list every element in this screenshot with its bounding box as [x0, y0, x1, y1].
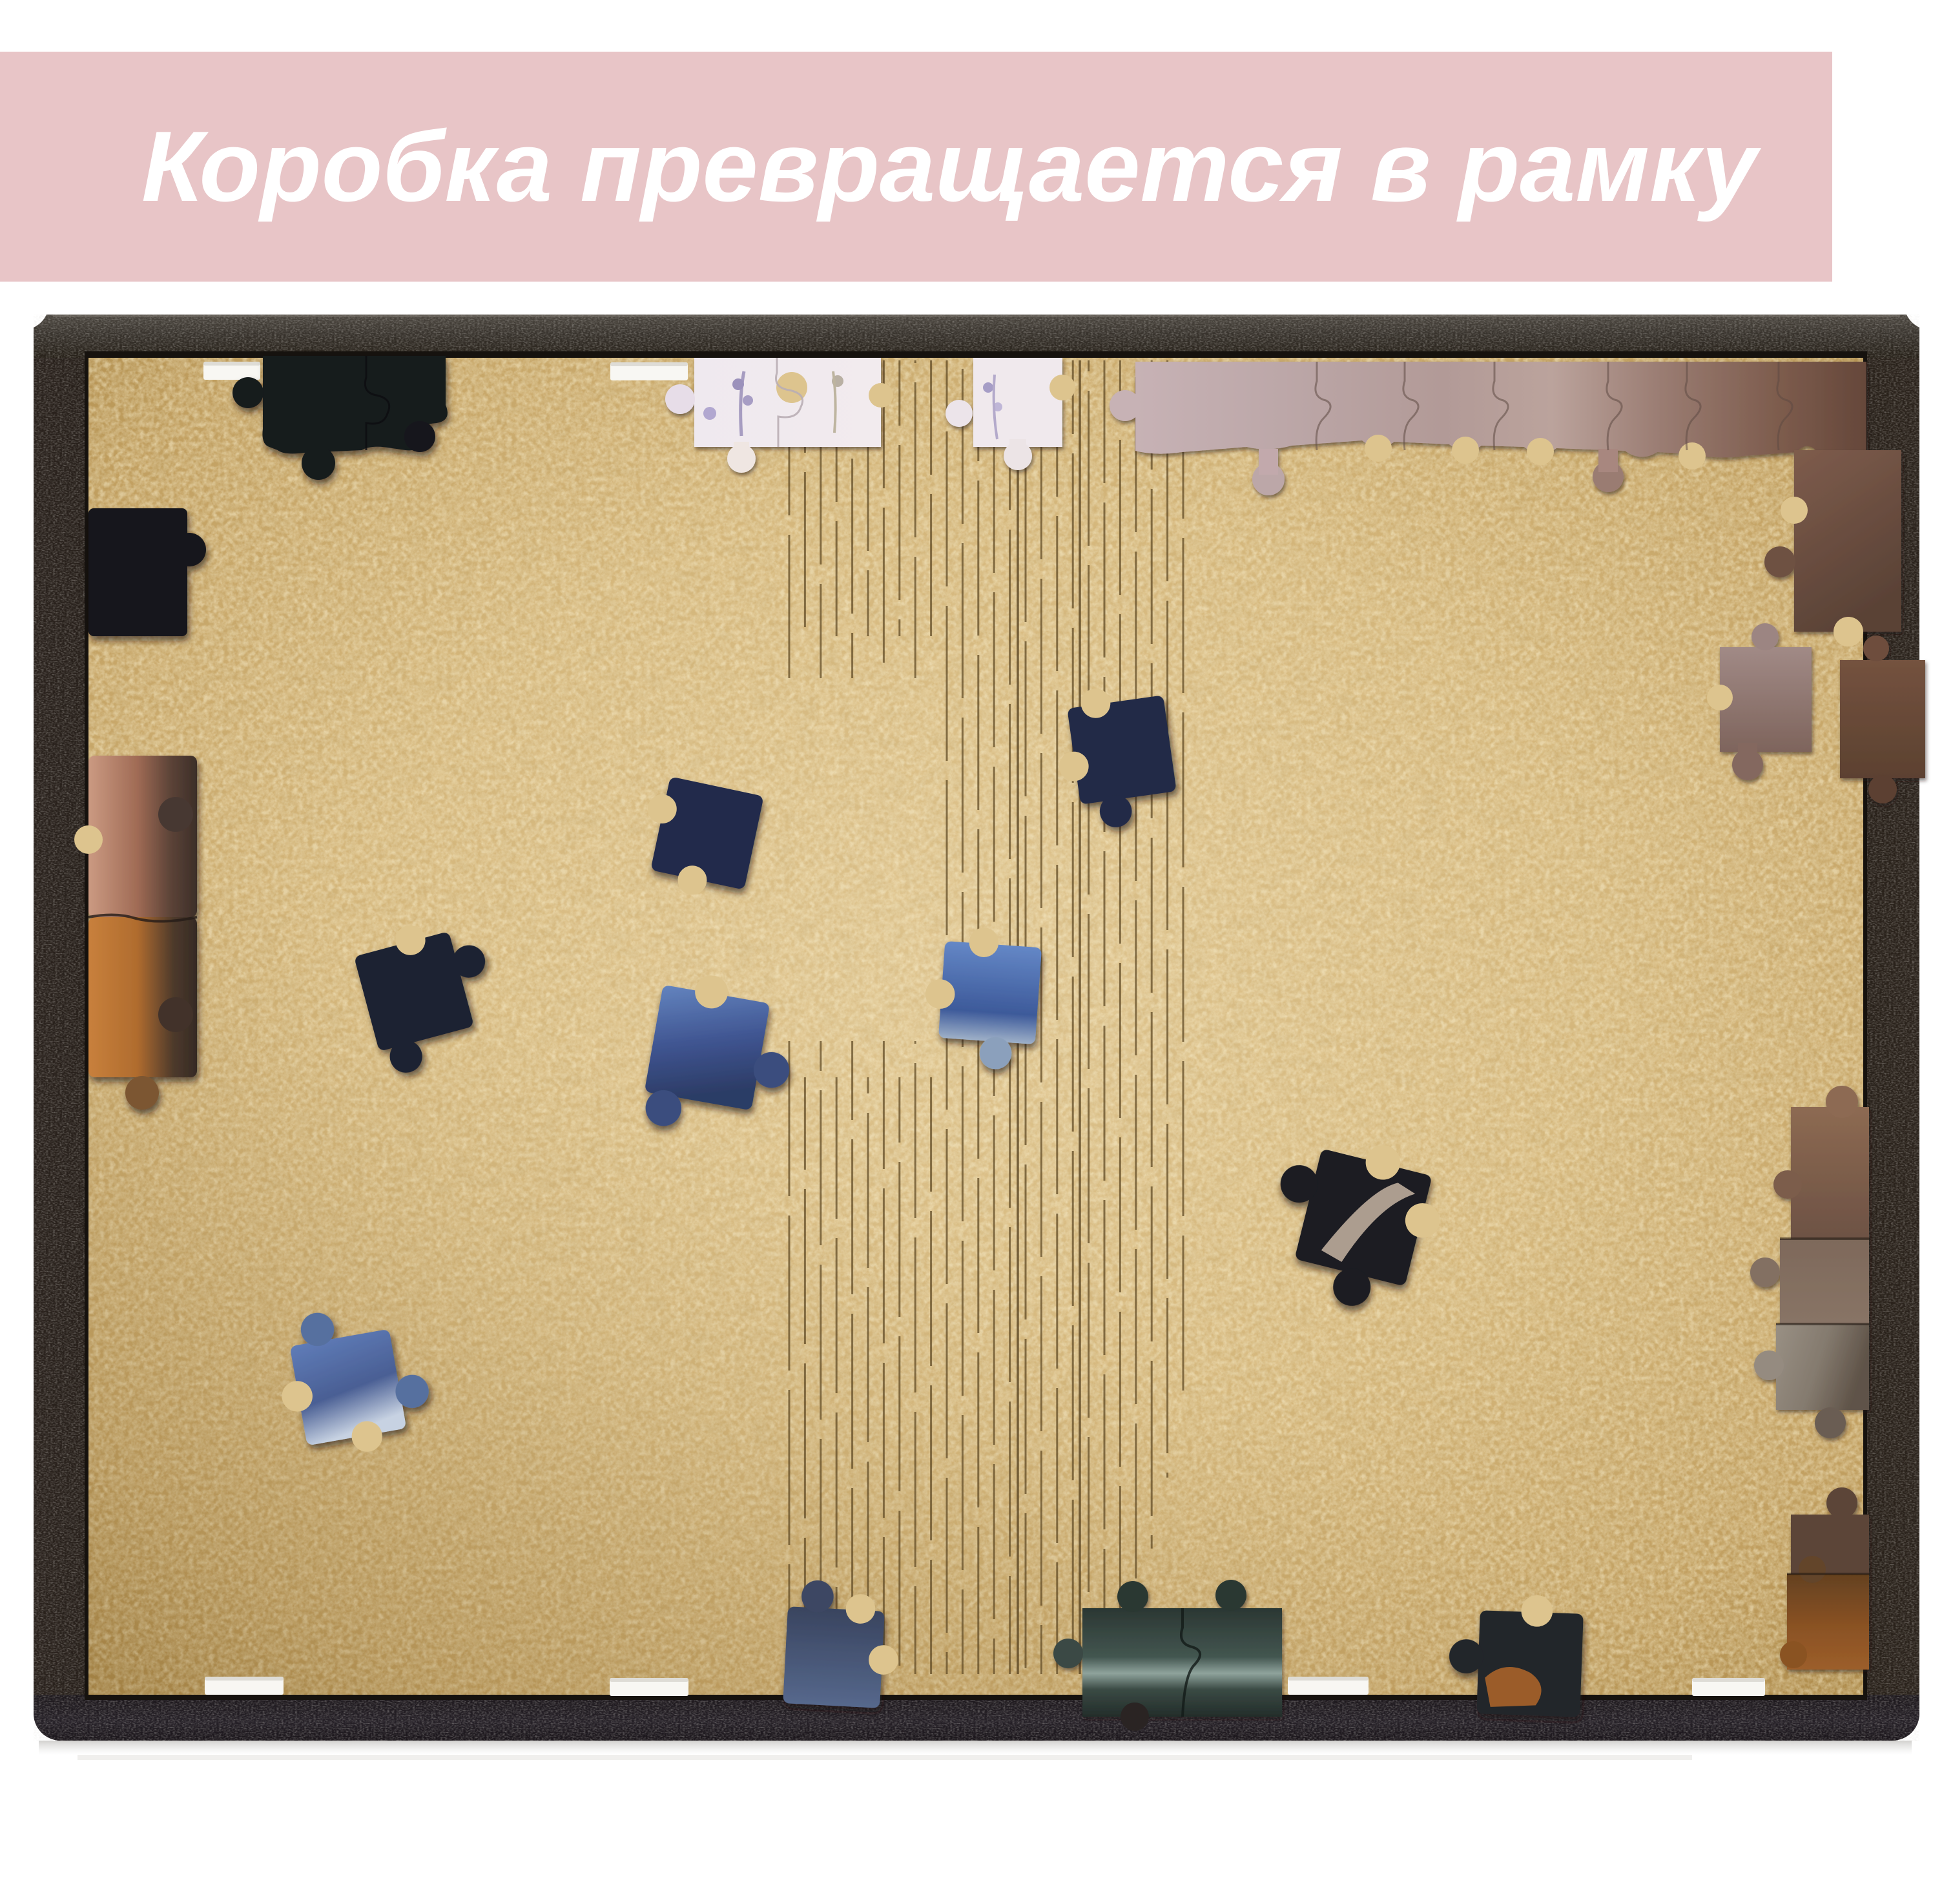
- svg-text:Коробка превращается в рамку: Коробка превращается в рамку: [141, 110, 1762, 222]
